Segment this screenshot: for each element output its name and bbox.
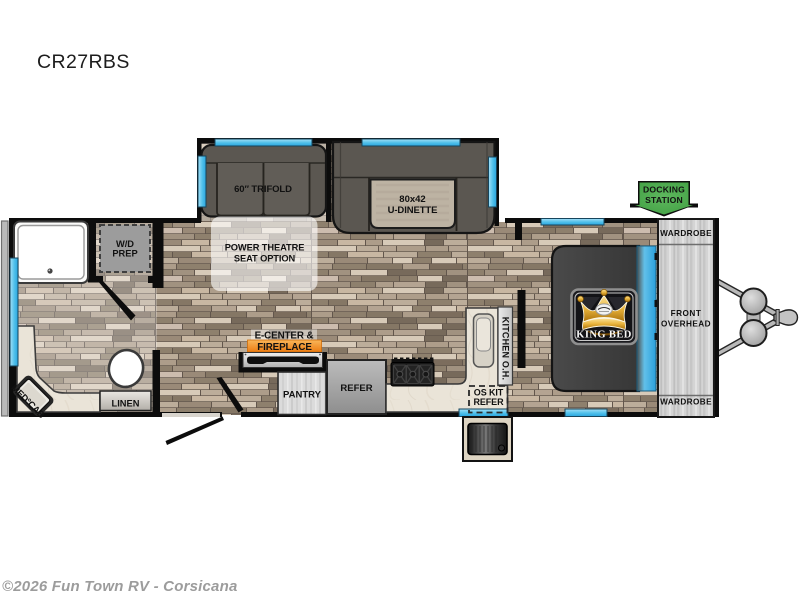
svg-text:REFER: REFER xyxy=(340,383,372,394)
svg-text:W/D: W/D xyxy=(116,239,134,249)
svg-text:PREP: PREP xyxy=(112,249,137,259)
svg-text:WARDROBE: WARDROBE xyxy=(660,229,712,238)
svg-text:FRONT: FRONT xyxy=(671,309,702,318)
svg-text:REFER: REFER xyxy=(473,397,504,407)
svg-text:80x42: 80x42 xyxy=(399,194,425,205)
svg-text:KING BED: KING BED xyxy=(576,330,631,341)
svg-text:DOCKING: DOCKING xyxy=(643,184,685,194)
svg-text:60″ TRIFOLD: 60″ TRIFOLD xyxy=(234,184,292,195)
svg-text:LINEN: LINEN xyxy=(112,399,140,409)
svg-text:U-DINETTE: U-DINETTE xyxy=(388,205,438,216)
svg-text:STATION: STATION xyxy=(645,195,683,205)
svg-text:OVERHEAD: OVERHEAD xyxy=(661,320,711,329)
svg-text:KITCHEN O.H.: KITCHEN O.H. xyxy=(501,317,511,380)
svg-text:FIREPLACE: FIREPLACE xyxy=(257,342,312,353)
svg-text:PANTRY: PANTRY xyxy=(283,389,322,400)
svg-text:POWER THEATRE: POWER THEATRE xyxy=(225,243,305,253)
svg-text:WARDROBE: WARDROBE xyxy=(660,398,712,407)
svg-text:SEAT OPTION: SEAT OPTION xyxy=(234,253,296,263)
